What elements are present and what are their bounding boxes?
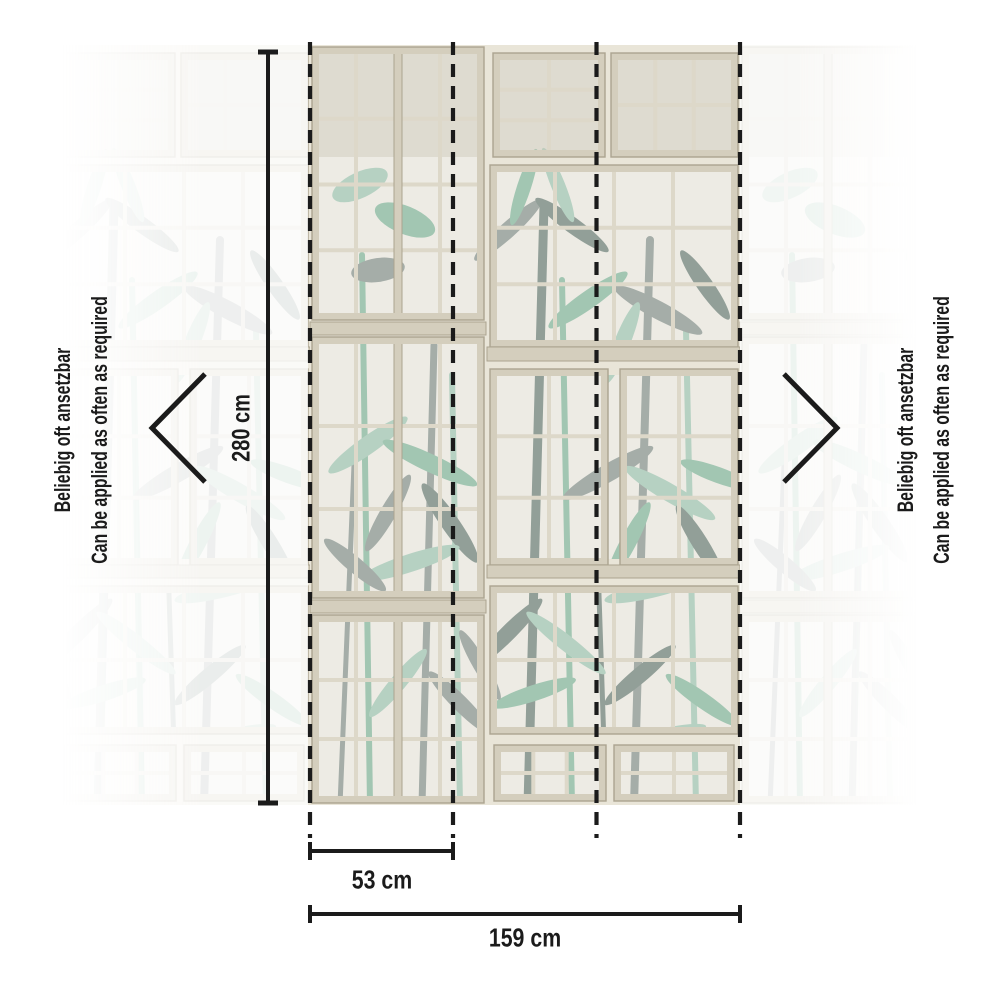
strip-width-dimension-line xyxy=(310,842,453,860)
chevron-left-icon xyxy=(152,374,205,482)
side-note-left-english: Can be applied as often as required xyxy=(87,296,113,564)
measurement-overlay xyxy=(0,0,1000,1000)
chevron-right-icon xyxy=(784,374,837,482)
height-label: 280 cm xyxy=(228,394,257,462)
side-note-left-german: Beliebig oft ansetzbar xyxy=(50,348,76,513)
total-width-label: 159 cm xyxy=(489,923,561,954)
height-dimension-line xyxy=(258,52,278,803)
side-note-right-english: Can be applied as often as required xyxy=(929,296,955,564)
strip-width-label: 53 cm xyxy=(352,865,412,896)
wallpaper-product-diagram: Beliebig oft ansetzbar Can be applied as… xyxy=(0,0,1000,1000)
total-width-dimension-line xyxy=(310,905,740,923)
side-note-right-german: Beliebig oft ansetzbar xyxy=(893,348,919,513)
